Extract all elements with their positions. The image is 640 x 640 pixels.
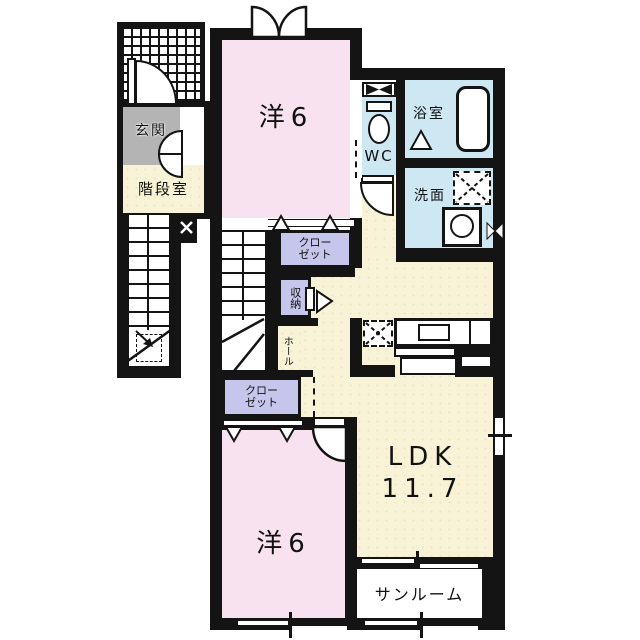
toilet-tank-icon bbox=[366, 101, 392, 112]
hall-corridor bbox=[362, 180, 396, 255]
hall-label: ホール bbox=[275, 328, 297, 374]
kitchen-dark-fixture bbox=[455, 347, 493, 377]
bedroom-top-label: 洋6 bbox=[222, 102, 350, 136]
wall-above-closet-bottom bbox=[210, 370, 313, 377]
washroom-label: 洗面 bbox=[403, 187, 457, 205]
outdoor-stairs-steps bbox=[129, 213, 169, 330]
closet-top-opening bbox=[268, 219, 354, 227]
outdoor-stairs-divider bbox=[147, 213, 149, 330]
laundry-pan-icon bbox=[453, 171, 491, 205]
stairs-down-box bbox=[136, 334, 162, 362]
kitchen-counter-icon bbox=[394, 318, 493, 347]
bath-label: 浴室 bbox=[403, 105, 455, 123]
ldk-size-label: 11.7 bbox=[350, 474, 495, 506]
bedroom-top-entry-dashed bbox=[355, 140, 357, 178]
floorplan-canvas: 玄関 階段室 WC 浴室 洗面 クローゼット bbox=[0, 0, 640, 640]
washing-machine-icon bbox=[442, 207, 482, 247]
ldk-right-window-tick bbox=[488, 434, 512, 437]
sunroom-bottom-window-tick bbox=[420, 612, 423, 638]
wall-bedroom-ldk bbox=[345, 417, 357, 630]
bedroom-bottom-window-tick bbox=[289, 612, 292, 638]
stairs-wall-left bbox=[117, 213, 129, 378]
wall-under-wet bbox=[396, 248, 493, 262]
kitchen-fixture-slot bbox=[462, 357, 490, 366]
kitchen-wall-stub bbox=[350, 365, 395, 377]
bedroom-bottom-door-leaf bbox=[313, 417, 346, 427]
inner-stairs-landing bbox=[222, 320, 265, 372]
closet-bottom-label: クローゼット bbox=[222, 380, 301, 414]
kitchen-counter-divider bbox=[469, 321, 471, 344]
sunroom-bottom-window-a bbox=[365, 621, 417, 625]
entry-door-leaf bbox=[127, 58, 136, 105]
wall-under-closet-top bbox=[265, 268, 355, 277]
wc-label: WC bbox=[362, 146, 396, 168]
wall-left bbox=[210, 28, 222, 630]
fridge-space-icon bbox=[363, 320, 393, 347]
bedroom-bottom-window-a bbox=[238, 621, 288, 625]
sunroom-top-window-a bbox=[362, 559, 414, 563]
wall-top-left bbox=[210, 28, 362, 40]
stairwell-label: 階段室 bbox=[123, 178, 204, 202]
sunroom-wall-right bbox=[482, 557, 493, 618]
sunroom-label: サンルーム bbox=[357, 584, 482, 606]
bedroom-bottom-window-b bbox=[292, 626, 347, 630]
bathtub-icon bbox=[456, 86, 490, 152]
wall-right bbox=[493, 68, 505, 630]
stairs-notch bbox=[169, 213, 197, 243]
duct-shaft-icon bbox=[362, 82, 396, 97]
wall-bath-wash bbox=[405, 158, 493, 168]
inner-stairs-divider bbox=[242, 230, 244, 320]
washing-machine-drum-icon bbox=[450, 214, 474, 238]
kitchen-island-icon bbox=[400, 357, 458, 375]
hall-ldk-boundary-dashed bbox=[313, 377, 315, 417]
kitchen-sink-icon bbox=[418, 324, 450, 341]
ldk-label: LDK bbox=[350, 442, 495, 474]
stairs-wall-bottom bbox=[117, 366, 181, 378]
genkan-label: 玄関 bbox=[121, 118, 181, 144]
closet-bottom-opening bbox=[224, 420, 302, 426]
sunroom-top-window-b bbox=[420, 564, 478, 568]
storage-door-leaf bbox=[305, 287, 315, 311]
closet-top-label: クローゼット bbox=[278, 233, 352, 265]
kitchen-lower-band bbox=[394, 347, 456, 357]
wall-under-storage bbox=[265, 318, 318, 326]
wc-door-leaf bbox=[361, 175, 394, 183]
bedroom-bottom-room bbox=[222, 430, 345, 618]
bedroom-bottom-label: 洋6 bbox=[222, 528, 345, 562]
toilet-bowl-icon bbox=[368, 114, 390, 144]
wall-top-right bbox=[350, 68, 505, 80]
sunroom-bottom-window-b bbox=[423, 626, 478, 630]
